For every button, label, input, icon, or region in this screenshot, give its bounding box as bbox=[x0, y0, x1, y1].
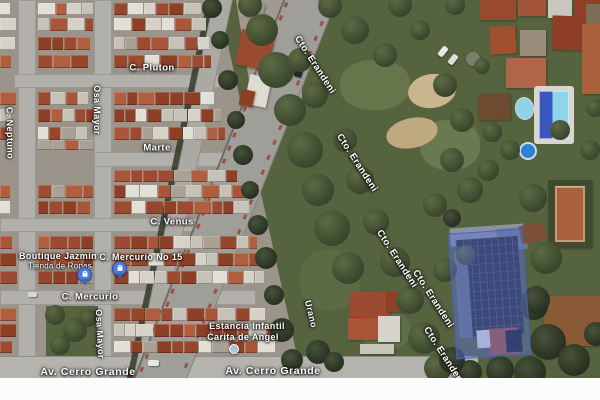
map-texture bbox=[208, 170, 225, 182]
map-texture bbox=[170, 324, 183, 337]
map-texture bbox=[153, 127, 168, 140]
map-texture bbox=[214, 109, 221, 122]
map-texture bbox=[233, 145, 253, 165]
map-texture bbox=[140, 185, 157, 198]
map-texture bbox=[51, 92, 65, 105]
map-texture bbox=[220, 185, 231, 198]
street-label-pluton: C. Pluton bbox=[129, 63, 174, 74]
map-texture bbox=[486, 356, 514, 378]
map-texture bbox=[183, 127, 193, 140]
map-texture bbox=[138, 92, 154, 105]
map-screenshot: C. Pluton C. Neptuno Osa Mayor Marte C. … bbox=[0, 0, 600, 400]
shopping-pin-mercurio-store[interactable] bbox=[112, 261, 127, 282]
map-texture bbox=[212, 201, 222, 214]
map-texture bbox=[38, 127, 48, 140]
map-texture bbox=[324, 352, 344, 372]
map-texture bbox=[218, 70, 238, 90]
map-texture bbox=[156, 3, 168, 15]
map-texture bbox=[126, 185, 139, 198]
map-texture bbox=[211, 31, 229, 49]
map-texture bbox=[197, 271, 212, 284]
map-texture bbox=[114, 201, 131, 214]
map-texture bbox=[159, 236, 173, 249]
map-texture bbox=[53, 271, 65, 284]
map-texture bbox=[173, 308, 186, 321]
map-texture bbox=[188, 109, 200, 122]
map-texture bbox=[348, 318, 378, 340]
map-texture bbox=[0, 37, 15, 50]
map-texture bbox=[177, 201, 193, 214]
map-texture bbox=[132, 201, 145, 214]
map-texture bbox=[67, 3, 81, 15]
street-label-venus: C. Venus bbox=[150, 217, 193, 228]
map-texture bbox=[52, 140, 64, 150]
map-texture bbox=[38, 92, 50, 105]
map-texture bbox=[82, 3, 93, 15]
map-texture bbox=[482, 122, 502, 142]
map-texture bbox=[213, 271, 227, 284]
map-texture bbox=[114, 18, 131, 31]
map-texture bbox=[196, 253, 206, 266]
map-texture bbox=[245, 341, 257, 353]
map-texture bbox=[248, 215, 268, 235]
map-texture bbox=[77, 37, 90, 50]
map-texture bbox=[192, 18, 206, 31]
map-texture bbox=[207, 253, 217, 266]
map-texture bbox=[192, 55, 203, 68]
map-texture bbox=[169, 127, 182, 140]
map-texture bbox=[114, 92, 126, 105]
map-texture bbox=[136, 324, 153, 337]
map-texture bbox=[125, 37, 136, 50]
map-texture bbox=[155, 271, 166, 284]
map-texture bbox=[410, 20, 430, 40]
map-texture bbox=[194, 201, 211, 214]
map-texture bbox=[49, 201, 62, 214]
map-texture bbox=[555, 186, 585, 242]
map-texture bbox=[170, 92, 183, 105]
map-texture bbox=[204, 55, 211, 68]
map-texture bbox=[237, 236, 248, 249]
map-texture bbox=[50, 18, 67, 31]
map-texture bbox=[433, 73, 457, 97]
poi-label-estancia-line2[interactable]: Carita de Angel bbox=[207, 332, 279, 342]
map-texture bbox=[174, 109, 187, 122]
map-texture bbox=[52, 185, 64, 198]
map-texture bbox=[0, 18, 16, 31]
map-texture bbox=[38, 140, 51, 150]
map-texture bbox=[114, 341, 130, 353]
map-texture bbox=[234, 253, 248, 266]
map-texture bbox=[129, 271, 139, 284]
map-texture bbox=[38, 201, 48, 214]
map-texture bbox=[241, 181, 259, 199]
map-texture bbox=[64, 37, 76, 50]
map-texture bbox=[520, 30, 546, 56]
map-texture bbox=[350, 291, 391, 318]
map-texture bbox=[148, 236, 158, 249]
map-texture bbox=[131, 236, 147, 249]
map-texture bbox=[136, 109, 146, 122]
map-texture bbox=[477, 159, 499, 181]
map-texture bbox=[146, 201, 163, 214]
map-texture bbox=[518, 0, 546, 16]
map-texture bbox=[66, 92, 77, 105]
map-texture bbox=[388, 0, 412, 17]
street-label-neptuno: C. Neptuno bbox=[5, 107, 16, 159]
map-texture bbox=[49, 127, 60, 140]
map-texture bbox=[341, 16, 369, 44]
map-texture bbox=[0, 271, 17, 284]
map-texture bbox=[255, 271, 264, 284]
map-texture bbox=[145, 308, 160, 321]
map-texture bbox=[78, 92, 88, 105]
map-texture bbox=[114, 37, 124, 50]
map-texture bbox=[181, 271, 196, 284]
map-texture bbox=[0, 324, 16, 337]
shopping-bag-icon bbox=[81, 270, 89, 278]
map-texture bbox=[0, 55, 11, 68]
street-label-cerro-grande-west: Av. Cerro Grande bbox=[40, 366, 135, 378]
map-texture bbox=[50, 335, 70, 355]
map-texture bbox=[71, 55, 88, 68]
map-texture bbox=[500, 140, 520, 160]
map-texture bbox=[314, 210, 350, 246]
map-texture bbox=[85, 18, 93, 31]
map-texture bbox=[457, 177, 483, 203]
map-texture bbox=[61, 127, 75, 140]
map-texture bbox=[114, 324, 124, 337]
map-texture bbox=[287, 132, 323, 168]
map-texture bbox=[186, 185, 201, 198]
map-texture bbox=[161, 308, 172, 321]
map-texture bbox=[246, 14, 278, 46]
map-texture bbox=[258, 341, 275, 353]
map-texture bbox=[236, 308, 249, 321]
pin-tail bbox=[117, 273, 123, 280]
map-texture bbox=[158, 170, 173, 182]
map-texture bbox=[220, 236, 236, 249]
map-texture bbox=[0, 201, 10, 214]
map-texture bbox=[125, 324, 135, 337]
map-texture bbox=[506, 58, 546, 88]
map-texture bbox=[131, 341, 142, 353]
map-texture bbox=[489, 25, 516, 54]
map-texture bbox=[218, 308, 235, 321]
map-texture bbox=[38, 109, 50, 122]
map-canvas[interactable]: C. Pluton C. Neptuno Osa Mayor Marte C. … bbox=[0, 0, 600, 378]
map-texture bbox=[144, 3, 155, 15]
map-texture bbox=[530, 242, 562, 274]
map-texture bbox=[51, 109, 62, 122]
map-texture bbox=[76, 127, 87, 140]
map-texture bbox=[0, 185, 10, 198]
map-texture bbox=[114, 55, 127, 68]
map-texture bbox=[154, 324, 169, 337]
map-texture bbox=[143, 341, 156, 353]
map-texture bbox=[203, 236, 219, 249]
map-texture bbox=[194, 127, 206, 140]
map-texture bbox=[264, 285, 284, 305]
map-texture bbox=[178, 55, 191, 68]
map-texture bbox=[226, 170, 237, 182]
map-texture bbox=[227, 111, 245, 129]
map-texture bbox=[582, 24, 600, 94]
map-texture bbox=[580, 140, 600, 160]
map-texture bbox=[447, 53, 459, 65]
map-texture bbox=[302, 174, 334, 206]
map-texture bbox=[519, 184, 547, 212]
map-texture bbox=[50, 236, 67, 249]
map-texture bbox=[83, 185, 93, 198]
map-texture bbox=[148, 360, 159, 366]
map-texture bbox=[218, 253, 233, 266]
map-texture bbox=[63, 201, 76, 214]
map-texture bbox=[38, 55, 52, 68]
map-texture bbox=[513, 96, 535, 121]
bottom-whitespace bbox=[0, 378, 600, 400]
map-texture bbox=[199, 341, 211, 353]
map-texture bbox=[146, 18, 161, 31]
map-texture bbox=[65, 185, 82, 198]
pin-tail bbox=[82, 279, 88, 286]
street-label-cerro-grande-east: Av. Cerro Grande bbox=[225, 365, 320, 377]
map-texture bbox=[450, 108, 474, 132]
map-texture bbox=[332, 252, 364, 284]
map-texture bbox=[519, 142, 537, 160]
map-texture bbox=[586, 99, 600, 117]
map-texture bbox=[205, 308, 217, 321]
map-texture bbox=[445, 0, 465, 15]
map-texture bbox=[137, 37, 150, 50]
map-texture bbox=[514, 356, 546, 378]
map-texture bbox=[81, 236, 93, 249]
map-texture bbox=[68, 18, 84, 31]
map-texture bbox=[191, 236, 202, 249]
map-texture bbox=[128, 3, 143, 15]
map-texture bbox=[172, 341, 183, 353]
map-texture bbox=[174, 236, 190, 249]
map-texture bbox=[38, 18, 49, 31]
map-texture bbox=[0, 341, 12, 353]
map-texture bbox=[201, 109, 213, 122]
map-texture bbox=[114, 236, 130, 249]
map-texture bbox=[162, 18, 174, 31]
map-texture bbox=[53, 55, 70, 68]
map-texture bbox=[212, 341, 228, 353]
map-texture bbox=[65, 140, 78, 150]
map-texture bbox=[79, 140, 93, 150]
map-texture bbox=[0, 308, 16, 321]
map-texture bbox=[127, 92, 137, 105]
map-texture bbox=[474, 58, 490, 74]
map-texture bbox=[143, 170, 157, 182]
map-texture bbox=[56, 3, 66, 15]
map-texture bbox=[558, 344, 590, 376]
map-texture bbox=[223, 201, 233, 214]
map-texture bbox=[45, 305, 65, 325]
map-texture bbox=[250, 308, 265, 321]
map-texture bbox=[142, 127, 152, 140]
map-texture bbox=[125, 109, 135, 122]
map-texture bbox=[130, 127, 141, 140]
map-texture bbox=[360, 344, 394, 354]
map-texture bbox=[157, 341, 171, 353]
street-label-mercurio: C. Mercurio bbox=[62, 292, 119, 303]
map-texture bbox=[437, 45, 449, 57]
map-texture bbox=[440, 148, 464, 172]
map-texture bbox=[38, 185, 51, 198]
map-texture bbox=[114, 3, 127, 15]
map-texture bbox=[184, 3, 201, 15]
selected-parcel-polygon[interactable] bbox=[448, 229, 532, 360]
map-texture bbox=[77, 201, 90, 214]
map-texture bbox=[114, 170, 130, 182]
map-texture bbox=[373, 43, 397, 67]
map-texture bbox=[218, 127, 225, 140]
map-texture bbox=[38, 3, 55, 15]
map-texture bbox=[184, 324, 195, 337]
poi-label-boutique-name[interactable]: Boutique Jazmin bbox=[19, 251, 97, 261]
map-texture bbox=[52, 37, 63, 50]
map-texture bbox=[550, 120, 570, 140]
map-texture bbox=[158, 185, 170, 198]
map-texture bbox=[480, 0, 516, 20]
map-texture bbox=[171, 185, 185, 198]
map-texture bbox=[184, 341, 198, 353]
map-texture bbox=[244, 271, 254, 284]
map-texture bbox=[202, 185, 219, 198]
map-texture bbox=[198, 37, 209, 50]
map-texture bbox=[114, 127, 129, 140]
map-texture bbox=[140, 271, 154, 284]
map-texture bbox=[175, 18, 191, 31]
map-texture bbox=[255, 247, 277, 269]
map-texture bbox=[164, 201, 176, 214]
street-label-marte: Marte bbox=[143, 143, 170, 154]
map-texture bbox=[184, 92, 200, 105]
map-texture bbox=[187, 308, 204, 321]
map-texture bbox=[114, 308, 130, 321]
map-texture bbox=[114, 109, 124, 122]
map-texture bbox=[68, 236, 80, 249]
map-texture bbox=[28, 292, 37, 297]
map-texture bbox=[249, 236, 257, 249]
map-texture bbox=[169, 3, 183, 15]
map-texture bbox=[167, 271, 180, 284]
map-texture bbox=[0, 253, 16, 266]
shopping-bag-icon bbox=[116, 264, 124, 272]
map-texture bbox=[169, 37, 184, 50]
map-texture bbox=[155, 92, 169, 105]
map-texture bbox=[114, 185, 125, 198]
map-texture bbox=[0, 92, 16, 105]
poi-label-estancia-line1[interactable]: Estancia Infantil bbox=[209, 321, 285, 331]
map-texture bbox=[75, 109, 85, 122]
map-texture bbox=[131, 308, 144, 321]
street-label-osa-mayor-north: Osa Mayor bbox=[92, 85, 102, 135]
map-texture bbox=[274, 94, 306, 126]
map-texture bbox=[207, 127, 217, 140]
map-texture bbox=[318, 0, 342, 18]
map-texture bbox=[340, 60, 410, 110]
map-texture bbox=[478, 93, 511, 120]
map-texture bbox=[63, 109, 74, 122]
map-texture bbox=[185, 37, 197, 50]
map-texture bbox=[147, 109, 161, 122]
map-texture bbox=[0, 236, 12, 249]
map-texture bbox=[0, 3, 10, 15]
map-texture bbox=[228, 271, 243, 284]
map-texture bbox=[38, 271, 52, 284]
map-texture bbox=[378, 316, 400, 342]
map-texture bbox=[132, 18, 145, 31]
map-texture bbox=[234, 201, 249, 214]
map-texture bbox=[94, 152, 236, 167]
map-texture bbox=[38, 236, 49, 249]
map-texture bbox=[201, 92, 214, 105]
map-texture bbox=[131, 170, 142, 182]
map-texture bbox=[162, 109, 173, 122]
map-texture bbox=[443, 209, 461, 227]
map-texture bbox=[151, 37, 168, 50]
poi-dot-estancia[interactable] bbox=[229, 344, 239, 354]
map-texture bbox=[38, 37, 51, 50]
shopping-pin-boutique[interactable] bbox=[77, 267, 92, 288]
map-texture bbox=[191, 170, 207, 182]
map-texture bbox=[174, 170, 190, 182]
